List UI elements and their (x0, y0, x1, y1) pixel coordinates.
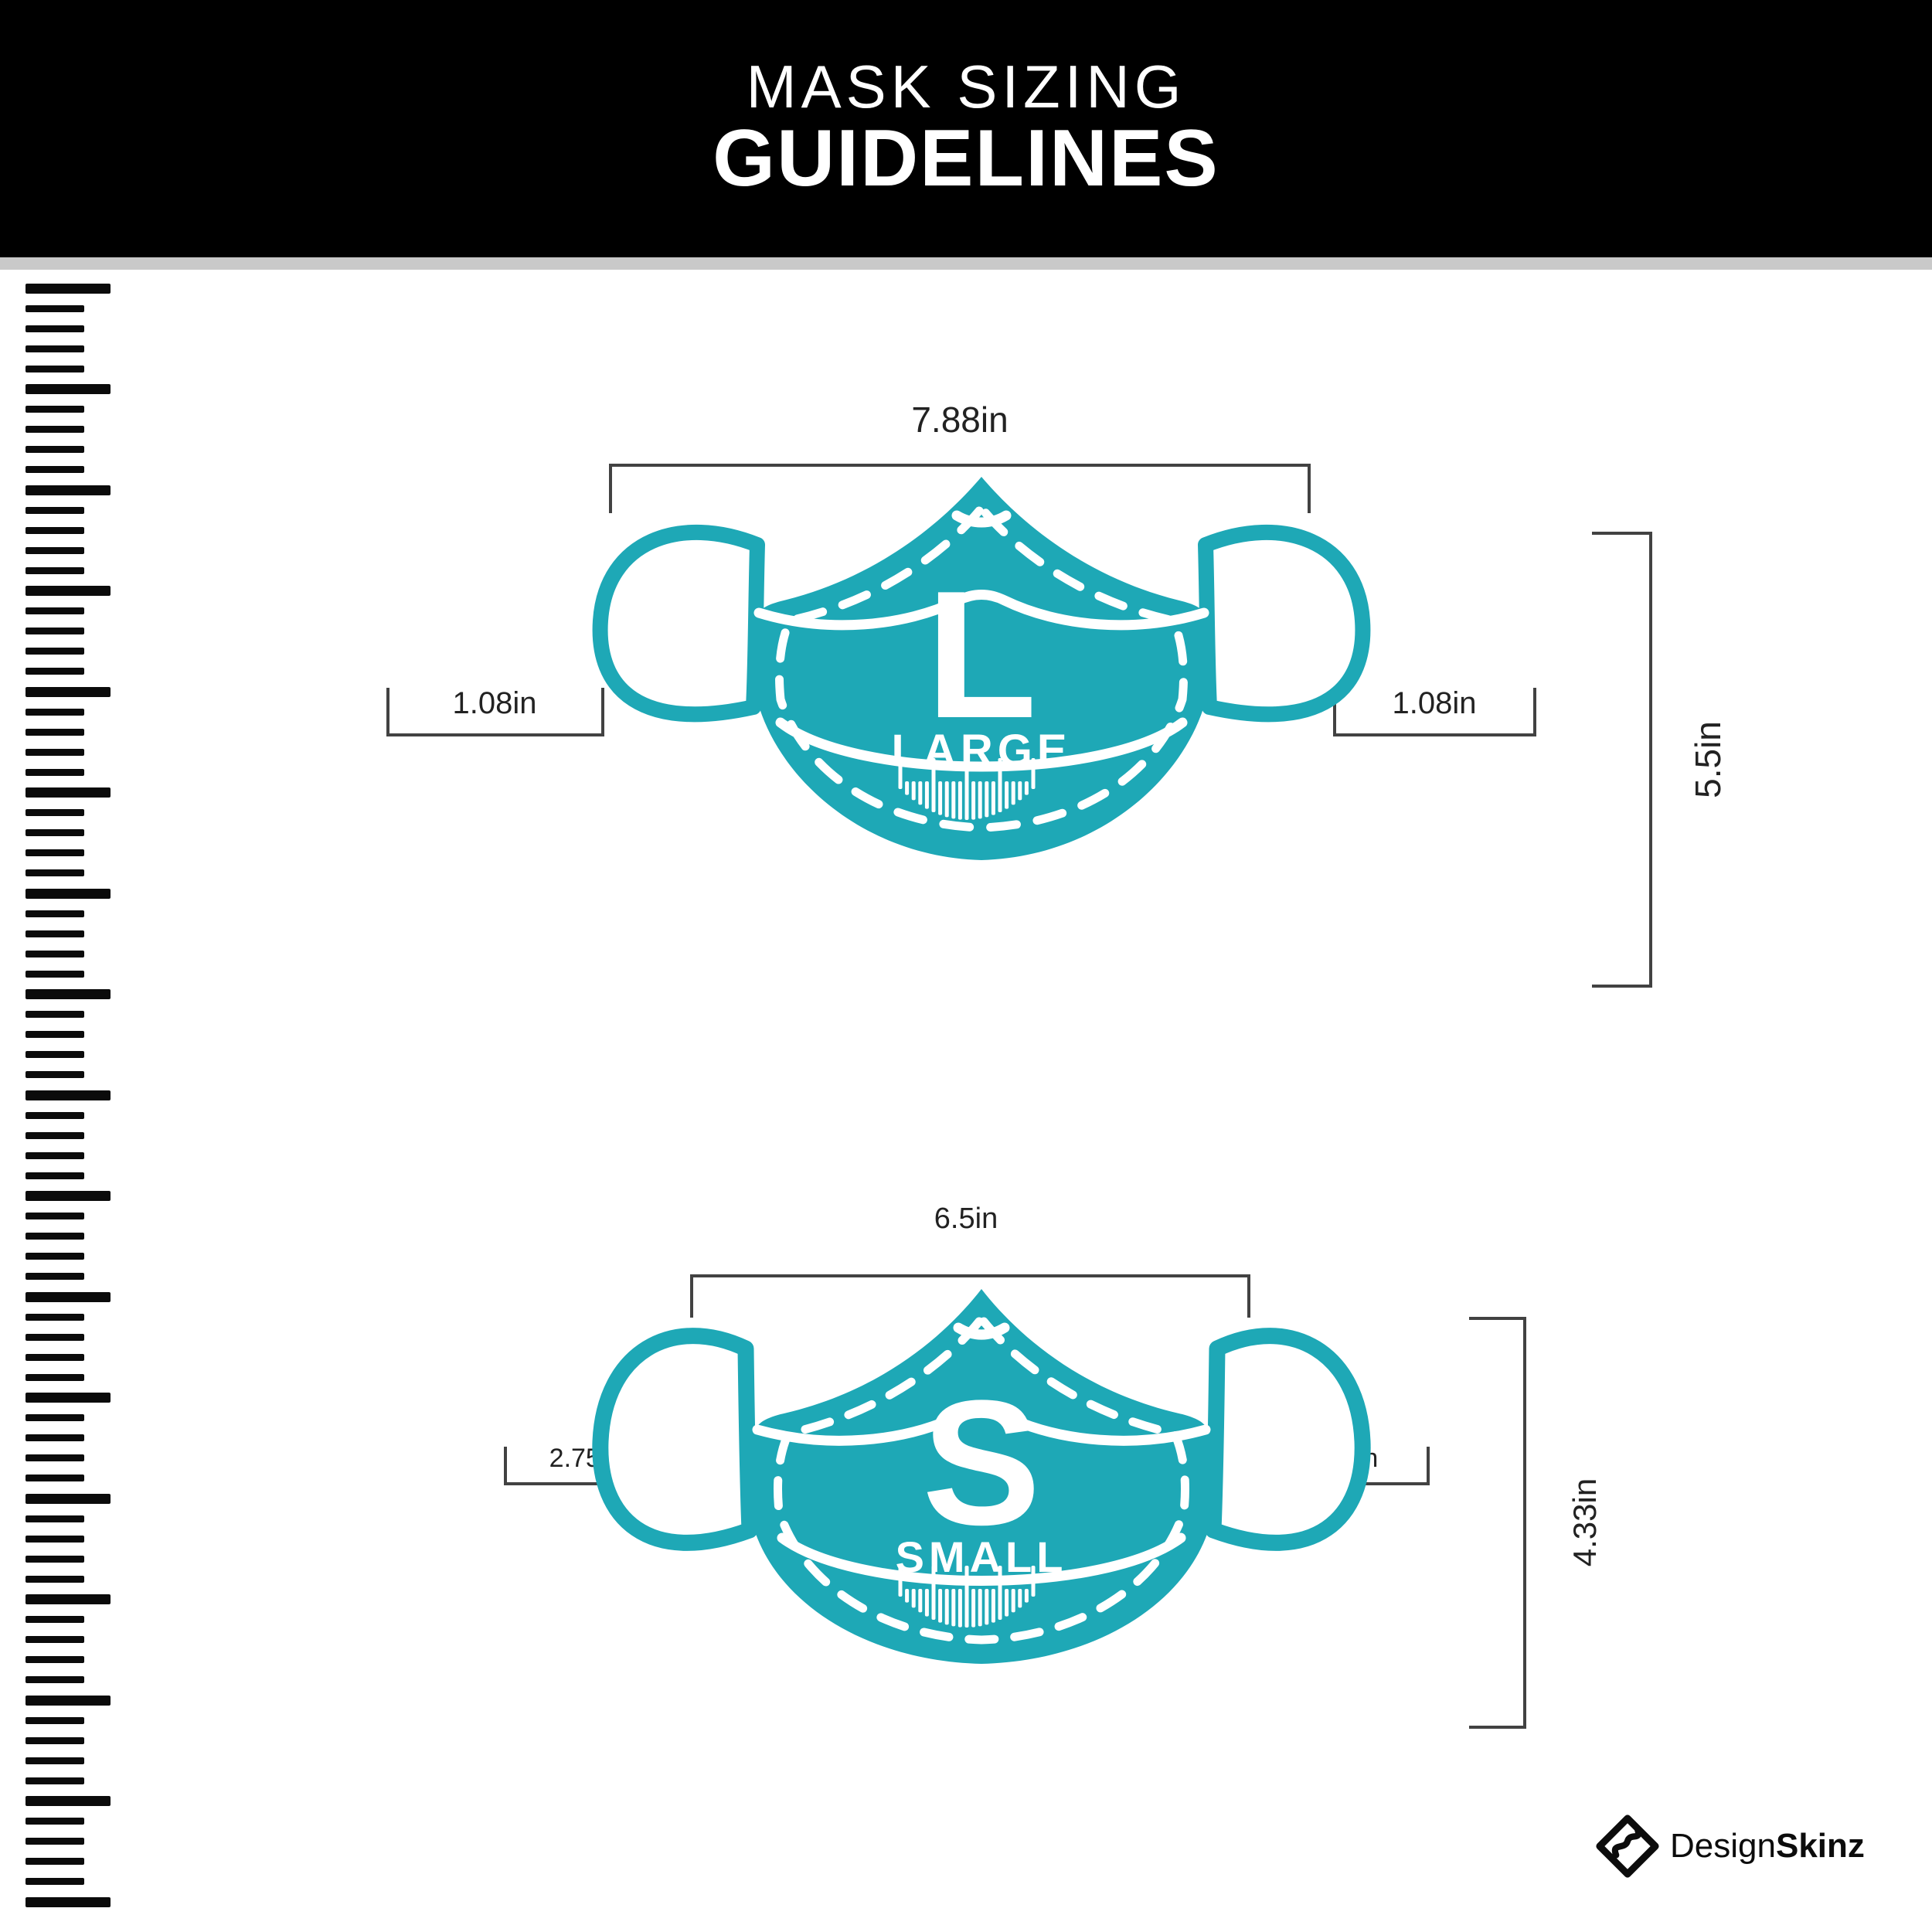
tape-minor-bar (918, 1589, 922, 1612)
large-mask-graphic: L LARGE (360, 475, 1603, 867)
ruler-major-tick (26, 787, 111, 798)
ruler-minor-tick (26, 930, 84, 937)
tape-minor-bar (958, 1589, 962, 1628)
ruler-minor-tick (26, 1656, 84, 1663)
tape-major-bar (965, 758, 969, 820)
tape-minor-bar (992, 1589, 995, 1623)
ruler-minor-tick (26, 869, 84, 876)
title-line-1: MASK SIZING (747, 56, 1186, 117)
ruler-major-tick (26, 384, 111, 394)
ruler-major-tick (26, 485, 111, 495)
ruler-minor-tick (26, 809, 84, 816)
ruler-minor-tick (26, 1152, 84, 1159)
ruler-minor-tick (26, 547, 84, 554)
tape-minor-bar (918, 781, 922, 804)
tape-minor-bar (1012, 781, 1015, 804)
ruler-minor-tick (26, 1374, 84, 1381)
tape-major-bar (932, 758, 936, 812)
tape-minor-bar (905, 1589, 909, 1603)
tape-minor-bar (1005, 1589, 1009, 1617)
tape-minor-bar (925, 781, 929, 809)
ruler-minor-tick (26, 345, 84, 352)
tape-minor-bar (938, 781, 942, 815)
ruler-minor-tick (26, 1616, 84, 1623)
ruler-minor-tick (26, 1071, 84, 1078)
tape-major-bar (1032, 1566, 1036, 1597)
ruler-minor-tick (26, 648, 84, 655)
ruler-major-tick (26, 586, 111, 596)
ruler-minor-tick (26, 1334, 84, 1341)
tape-minor-bar (1018, 781, 1022, 800)
ruler-minor-tick (26, 1273, 84, 1280)
ruler-minor-tick (26, 1676, 84, 1683)
ruler-major-tick (26, 889, 111, 899)
brand-lockup: DesignSkinz (1596, 1815, 1865, 1878)
small-top-width-label: 6.5in (850, 1202, 1082, 1236)
tape-minor-bar (1025, 781, 1029, 795)
ruler-minor-tick (26, 466, 84, 473)
ruler-minor-tick (26, 1777, 84, 1784)
tape-minor-bar (971, 1589, 975, 1628)
tape-minor-bar (905, 781, 909, 795)
tape-major-bar (899, 1566, 903, 1597)
ruler-minor-tick (26, 628, 84, 634)
tape-minor-bar (985, 781, 988, 817)
large-left-earloop (600, 532, 757, 714)
tape-minor-bar (985, 1589, 988, 1624)
ruler-minor-tick (26, 1314, 84, 1321)
small-mask-word: SMALL (896, 1532, 1068, 1581)
tape-minor-bar (1025, 1589, 1029, 1603)
tape-minor-bar (958, 781, 962, 820)
tape-minor-bar (912, 781, 916, 800)
small-right-earloop (1213, 1336, 1362, 1543)
ruler-minor-tick (26, 1475, 84, 1481)
ruler-minor-tick (26, 1717, 84, 1724)
ruler-major-tick (26, 1191, 111, 1201)
ruler-minor-tick (26, 1434, 84, 1441)
ruler-major-tick (26, 1494, 111, 1504)
large-mask-word: LARGE (892, 726, 1072, 776)
title-line-2: GUIDELINES (713, 117, 1219, 201)
ruler-minor-tick (26, 951, 84, 957)
ruler-major-tick (26, 1594, 111, 1604)
ruler-minor-tick (26, 446, 84, 453)
large-height-label: 5.5in (1687, 682, 1726, 837)
tape-minor-bar (978, 781, 982, 818)
ruler-minor-tick (26, 1132, 84, 1139)
ruler-minor-tick (26, 769, 84, 776)
tape-major-bar (1032, 758, 1036, 789)
small-height-bracket (1469, 1317, 1526, 1729)
ruler-major-tick (26, 1393, 111, 1403)
ruler-minor-tick (26, 325, 84, 332)
ruler-minor-tick (26, 1414, 84, 1421)
infographic-canvas: MASK SIZING GUIDELINES 7.88in 1.08in 1.0… (0, 0, 1932, 1932)
ruler-minor-tick (26, 1051, 84, 1058)
small-height-label: 4.33in (1566, 1445, 1605, 1600)
ruler-minor-tick (26, 1112, 84, 1119)
ruler-minor-tick (26, 1172, 84, 1179)
header-band: MASK SIZING GUIDELINES (0, 0, 1932, 257)
designskinz-diamond-icon (1596, 1815, 1659, 1878)
ruler-minor-tick (26, 1737, 84, 1744)
brand-name-regular: Design (1670, 1827, 1776, 1865)
header-divider-strip (0, 257, 1932, 270)
ruler-minor-tick (26, 1031, 84, 1038)
ruler-minor-tick (26, 1636, 84, 1643)
ruler-major-tick (26, 1696, 111, 1706)
ruler-minor-tick (26, 849, 84, 856)
tape-minor-bar (925, 1589, 929, 1617)
ruler-minor-tick (26, 305, 84, 312)
tape-major-bar (998, 1566, 1002, 1620)
tape-minor-bar (1005, 781, 1009, 809)
tape-minor-bar (945, 781, 949, 817)
tape-minor-bar (978, 1589, 982, 1626)
ruler-minor-tick (26, 406, 84, 413)
tape-major-bar (899, 758, 903, 789)
ruler-minor-tick (26, 749, 84, 756)
ruler-minor-tick (26, 507, 84, 514)
ruler-minor-tick (26, 668, 84, 675)
tape-major-bar (998, 758, 1002, 812)
ruler-minor-tick (26, 366, 84, 372)
small-mask-graphic: S SMALL (495, 1283, 1468, 1669)
tape-major-bar (965, 1566, 969, 1628)
ruler-minor-tick (26, 910, 84, 917)
ruler-minor-tick (26, 1818, 84, 1825)
ruler-minor-tick (26, 1454, 84, 1461)
ruler-minor-tick (26, 829, 84, 836)
ruler-major-tick (26, 1796, 111, 1806)
tape-minor-bar (945, 1589, 949, 1624)
ruler-major-tick (26, 1292, 111, 1302)
large-right-earloop (1206, 532, 1362, 714)
ruler-minor-tick (26, 1011, 84, 1018)
tape-minor-bar (951, 781, 955, 818)
ruler-major-tick (26, 687, 111, 697)
ruler-minor-tick (26, 607, 84, 614)
tape-major-bar (932, 1566, 936, 1620)
tape-minor-bar (951, 1589, 955, 1626)
ruler-minor-tick (26, 1838, 84, 1845)
ruler-minor-tick (26, 1878, 84, 1885)
ruler-major-tick (26, 1897, 111, 1907)
ruler-minor-tick (26, 1536, 84, 1543)
tape-minor-bar (971, 781, 975, 820)
ruler-minor-tick (26, 1354, 84, 1361)
ruler-minor-tick (26, 527, 84, 534)
ruler-minor-tick (26, 1515, 84, 1522)
ruler-minor-tick (26, 1213, 84, 1219)
ruler-minor-tick (26, 709, 84, 716)
ruler-major-tick (26, 1090, 111, 1100)
brand-name-bold: Skinz (1776, 1827, 1865, 1865)
ruler-minor-tick (26, 1576, 84, 1583)
ruler-minor-tick (26, 1757, 84, 1764)
ruler-minor-tick (26, 729, 84, 736)
ruler-minor-tick (26, 567, 84, 574)
tape-minor-bar (938, 1589, 942, 1623)
ruler-minor-tick (26, 426, 84, 433)
ruler-major-tick (26, 284, 111, 294)
ruler-minor-tick (26, 1556, 84, 1563)
ruler-graphic (26, 0, 141, 1932)
ruler-minor-tick (26, 1253, 84, 1260)
ruler-minor-tick (26, 1233, 84, 1240)
tape-minor-bar (1018, 1589, 1022, 1607)
ruler-minor-tick (26, 971, 84, 978)
large-top-width-label: 7.88in (844, 399, 1076, 440)
tape-minor-bar (1012, 1589, 1015, 1612)
small-left-earloop (600, 1336, 750, 1543)
brand-name: DesignSkinz (1670, 1827, 1865, 1866)
tape-minor-bar (912, 1589, 916, 1607)
ruler-major-tick (26, 989, 111, 999)
ruler-minor-tick (26, 1858, 84, 1865)
tape-minor-bar (992, 781, 995, 815)
